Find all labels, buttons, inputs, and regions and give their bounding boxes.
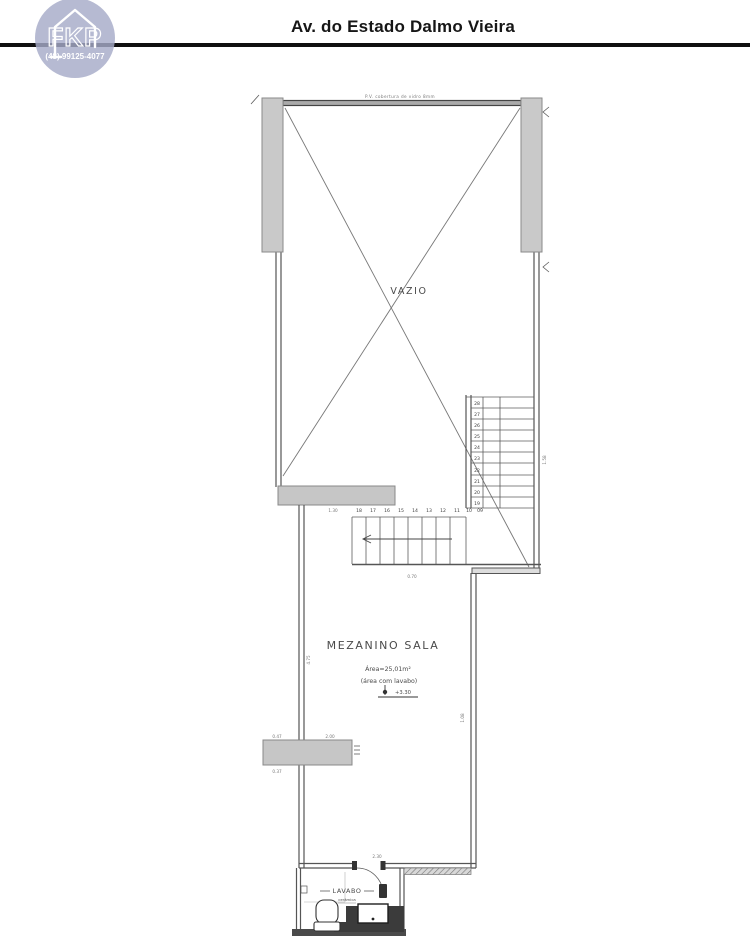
column-left xyxy=(262,98,283,252)
stair-step-number: 12 xyxy=(440,508,446,514)
vazio-label: VAZIO xyxy=(390,286,427,297)
dim-stair-bottom: 0.70 xyxy=(407,574,417,579)
hatched-wall xyxy=(404,868,471,875)
stair-step-number: 23 xyxy=(474,456,480,462)
top-wall xyxy=(283,101,521,106)
mezzanine-room: 2.30 0.47 2.00 0.37 MEZANINO SALA Área=2… xyxy=(263,505,476,870)
stair-step-number: 15 xyxy=(398,508,404,514)
level-marker: +3.30 xyxy=(378,685,418,697)
room-area-note: (área com lavabo) xyxy=(361,677,417,685)
stair-step-number: 10 xyxy=(466,508,472,514)
stair-step-number: 20 xyxy=(474,490,480,496)
dim-sill-left: 0.47 xyxy=(272,734,282,739)
dim-mezz-left: 4.75 xyxy=(306,655,311,665)
level-value: +3.30 xyxy=(395,690,411,696)
stair-step-number: 28 xyxy=(474,401,480,407)
lavabo-room: LAVABO cerâmica xyxy=(292,868,471,936)
room-title: MEZANINO SALA xyxy=(327,639,440,652)
dim-door: 2.30 xyxy=(372,854,382,859)
floor-plan: P.V. cobertura de vidro 8mm VAZIO 1.58 xyxy=(0,0,750,950)
stair-step-number: 13 xyxy=(426,508,432,514)
faucet xyxy=(372,918,375,921)
wall-mark-top xyxy=(543,107,549,117)
toilet xyxy=(316,900,338,924)
logo-phone: (48) 99125-4077 xyxy=(45,52,105,61)
column-right xyxy=(521,98,542,252)
top-wall-note: P.V. cobertura de vidro 8mm xyxy=(365,94,435,99)
stair-step-number: 21 xyxy=(474,479,480,485)
door-jamb xyxy=(352,861,357,870)
dim-sill-bottom: 0.37 xyxy=(272,769,282,774)
page: Av. do Estado Dalmo Vieira FKP (48) 9912… xyxy=(0,0,750,950)
stair-parapet xyxy=(278,486,395,505)
wall-mark-mid xyxy=(543,262,549,272)
room-area: Área=25,01m² xyxy=(365,664,411,673)
stair-direction-arrow xyxy=(363,535,452,543)
right-wall-cap xyxy=(472,568,540,574)
stair-step-number: 18 xyxy=(356,508,362,514)
stair-step-number: 09 xyxy=(477,508,483,514)
break-mark xyxy=(251,95,259,104)
stair-step-number: 22 xyxy=(474,468,480,474)
lavabo-note: cerâmica xyxy=(338,897,355,902)
left-sill: 0.47 2.00 0.37 xyxy=(263,734,360,774)
lavabo-label: LAVABO xyxy=(333,887,362,895)
stair-step-number: 16 xyxy=(384,508,390,514)
dim-sill-right: 2.00 xyxy=(325,734,335,739)
wall-fixture xyxy=(301,886,307,893)
dim-right-wall: 1.58 xyxy=(542,455,547,465)
dim-stair-run: 1.30 xyxy=(328,508,338,513)
door-leaf xyxy=(379,884,387,898)
stair-step-number: 11 xyxy=(454,508,460,514)
stair-step-number: 19 xyxy=(474,501,480,507)
stair-step-number: 24 xyxy=(474,445,480,451)
door-jamb xyxy=(381,861,386,870)
stair-step-number: 25 xyxy=(474,434,480,440)
stair-step-number: 26 xyxy=(474,423,480,429)
logo-text: FKP xyxy=(48,22,103,52)
page-title: Av. do Estado Dalmo Vieira xyxy=(56,17,750,37)
stair-step-number: 27 xyxy=(474,412,480,418)
stair-step-number: 17 xyxy=(370,508,376,514)
dim-mezz-right: 1.08 xyxy=(460,713,465,723)
stair-step-number: 14 xyxy=(412,508,418,514)
toilet-tank xyxy=(314,922,340,931)
fkp-logo: FKP (48) 99125-4077 xyxy=(30,0,122,88)
